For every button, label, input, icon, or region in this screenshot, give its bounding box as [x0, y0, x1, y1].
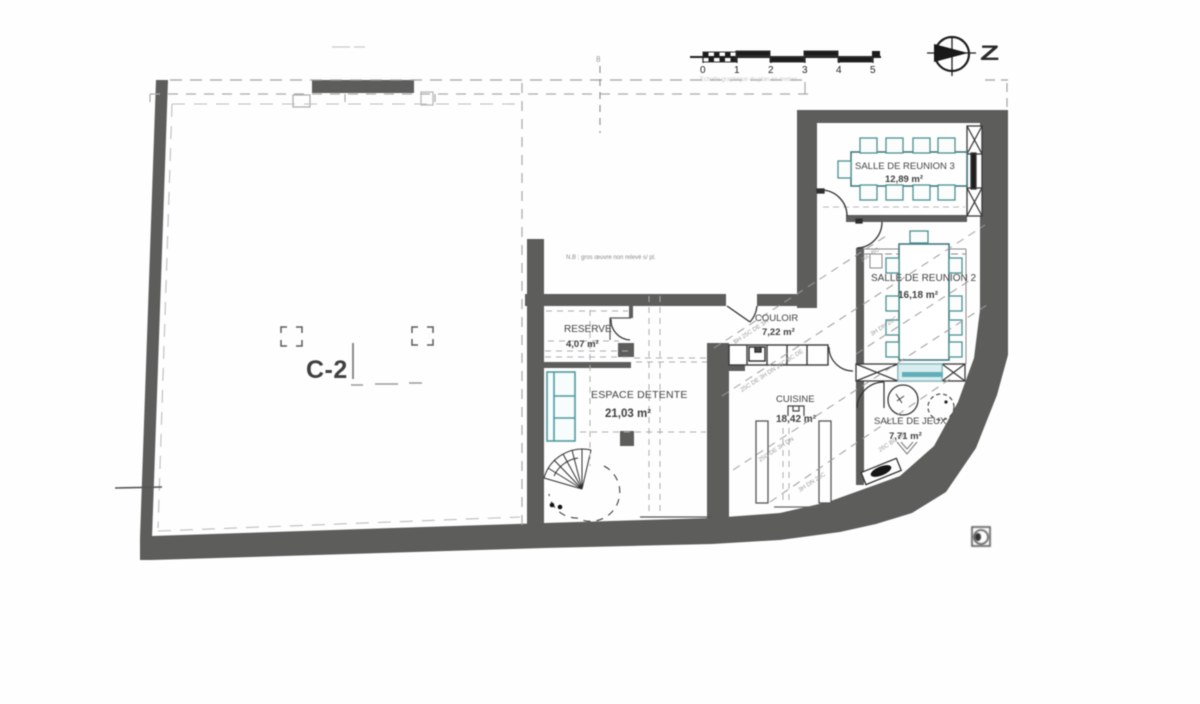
svg-text:C-2: C-2 [306, 356, 348, 384]
svg-text:4: 4 [836, 65, 842, 76]
svg-text:7,71 m²: 7,71 m² [889, 431, 922, 442]
svg-text:8: 8 [596, 55, 601, 64]
svg-text:N.B : gros œuvre non relevé s/: N.B : gros œuvre non relevé s/ pl. [566, 255, 656, 261]
svg-text:RESERVE: RESERVE [564, 324, 612, 335]
svg-text:0: 0 [700, 65, 706, 76]
svg-text:4,07 m²: 4,07 m² [566, 339, 599, 350]
svg-text:CUISINE: CUISINE [776, 394, 815, 405]
svg-text:Z: Z [980, 41, 999, 65]
svg-text:SALLE DE REUNION 2: SALLE DE REUNION 2 [871, 273, 976, 284]
svg-text:ESPACE DETENTE: ESPACE DETENTE [591, 389, 688, 401]
svg-text:3: 3 [802, 65, 808, 76]
svg-text:7,22 m²: 7,22 m² [762, 327, 795, 338]
svg-text:12,89 m²: 12,89 m² [885, 174, 923, 185]
svg-text:2: 2 [768, 65, 774, 76]
svg-text:21,03 m²: 21,03 m² [605, 408, 651, 420]
svg-text:16,18 m²: 16,18 m² [898, 290, 939, 301]
svg-text:SALLE DE REUNION 3: SALLE DE REUNION 3 [855, 161, 955, 172]
svg-text:SALLE DE JEUX: SALLE DE JEUX [874, 416, 947, 427]
svg-text:18,42 m²: 18,42 m² [776, 414, 817, 425]
svg-text:Echelle graphique du plan en m: Echelle graphique du plan en metres [700, 77, 798, 83]
svg-text:COULOIR: COULOIR [755, 313, 798, 324]
svg-text:5: 5 [870, 65, 876, 76]
svg-text:1: 1 [734, 65, 740, 76]
